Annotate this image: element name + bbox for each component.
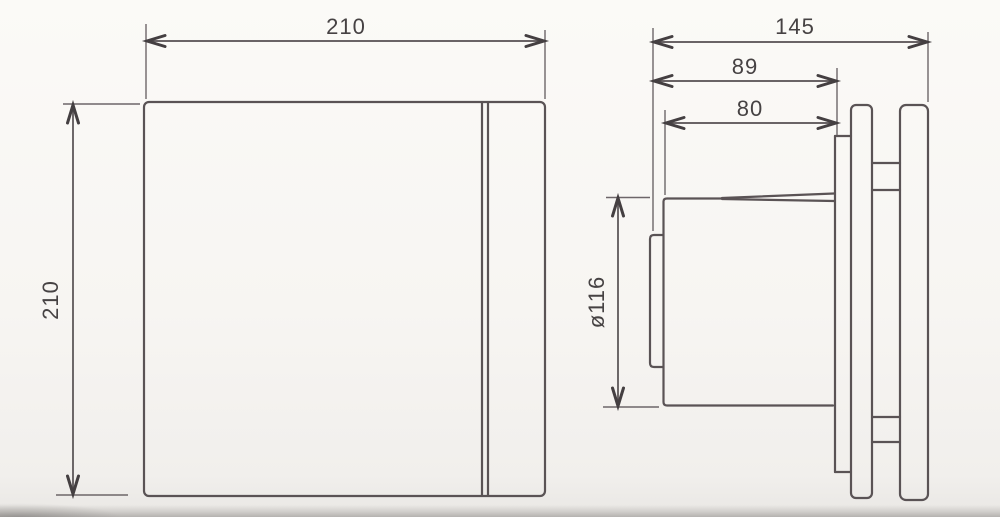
front-view [144, 102, 545, 496]
mounting-plate-outline [851, 105, 872, 498]
dim-duct-length: 80 [665, 96, 836, 195]
front-cover-side-outline [900, 105, 928, 500]
dim-label-duct-diameter: ø116 [584, 276, 609, 329]
side-view [650, 105, 928, 500]
dim-label-front-height: 210 [38, 280, 63, 320]
dim-label-front-width: 210 [326, 14, 366, 39]
dim-label-overall-depth: 145 [775, 14, 815, 39]
front-cover-outline [144, 102, 545, 496]
dim-front-height: 210 [38, 104, 140, 495]
duct-taper-line-upper [722, 194, 834, 199]
drawing-sheet: 210 210 145 [0, 0, 1000, 517]
dim-front-width: 210 [146, 14, 545, 99]
duct-rear-lip [650, 235, 663, 367]
dim-duct-diameter: ø116 [584, 198, 659, 408]
duct-taper-line-lower [722, 199, 834, 201]
technical-drawing: 210 210 145 [0, 0, 1000, 517]
dim-label-body-depth: 89 [732, 54, 758, 79]
dim-label-duct-length: 80 [737, 96, 763, 121]
duct-spigot-outline [664, 199, 834, 406]
